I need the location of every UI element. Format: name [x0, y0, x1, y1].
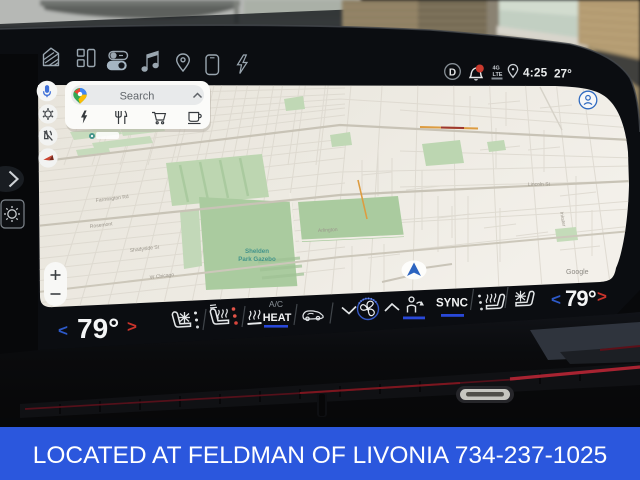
- svg-text:79°: 79°: [565, 286, 596, 311]
- svg-text:<: <: [551, 290, 561, 309]
- svg-text:Lincoln St: Lincoln St: [528, 182, 551, 188]
- svg-text:27°: 27°: [554, 67, 572, 81]
- svg-text:HEAT: HEAT: [263, 312, 292, 324]
- svg-text:>: >: [597, 287, 607, 306]
- svg-text:Search: Search: [120, 91, 155, 103]
- svg-text:LTE: LTE: [493, 72, 503, 78]
- svg-text:LOCATED AT FELDMAN OF LIVONIA: LOCATED AT FELDMAN OF LIVONIA 734-237-10…: [33, 442, 608, 469]
- svg-text:Shelden: Shelden: [245, 248, 269, 255]
- svg-text:D: D: [449, 68, 456, 79]
- svg-text:>: >: [127, 317, 137, 336]
- svg-text:A/C: A/C: [269, 299, 283, 309]
- svg-text:Google: Google: [566, 269, 589, 276]
- svg-text:4:25: 4:25: [523, 66, 548, 80]
- svg-text:79°: 79°: [77, 313, 119, 344]
- svg-text:SYNC: SYNC: [436, 298, 468, 310]
- svg-text:<: <: [58, 321, 68, 340]
- svg-text:Arlington: Arlington: [318, 227, 338, 234]
- svg-text:4G: 4G: [493, 66, 500, 72]
- svg-text:Park Gazebo: Park Gazebo: [238, 256, 276, 263]
